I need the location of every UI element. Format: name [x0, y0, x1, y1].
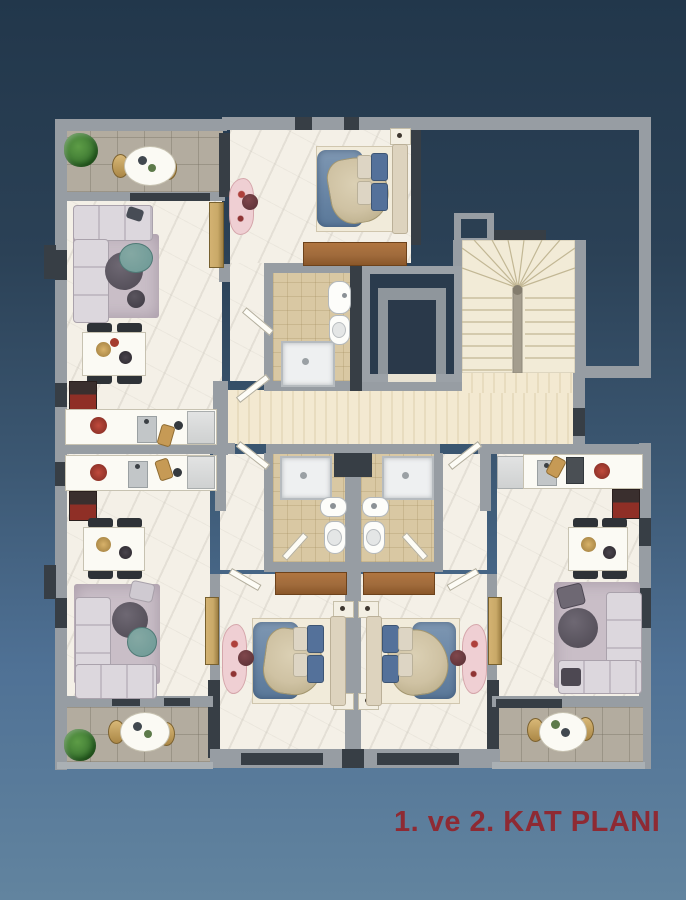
- bed-pillow: [382, 655, 399, 683]
- table-decor: [110, 338, 119, 347]
- bed-headboard: [392, 144, 408, 234]
- stove-icon: [612, 489, 640, 519]
- faucet-icon: [135, 464, 140, 469]
- entry-door: [209, 202, 224, 268]
- wall-bath-r-bottom: [352, 562, 443, 572]
- staircase: [462, 240, 575, 373]
- wall-top-balcony: [55, 119, 227, 131]
- wall-top-outer: [222, 117, 651, 130]
- wall-corridor-bottom-right: [478, 444, 575, 454]
- desk-stool: [450, 650, 466, 666]
- kettle-icon: [173, 468, 182, 477]
- dresser: [275, 572, 347, 595]
- edge-balcony-br: [492, 762, 645, 769]
- shower-drain: [302, 358, 309, 365]
- wall-void-bottom: [575, 366, 651, 378]
- plan-title: 1. ve 2. KAT PLANI: [394, 806, 654, 842]
- desk-stool: [238, 650, 254, 666]
- wall-bedroom-4-right-dark: [487, 680, 499, 758]
- flower-decor: [90, 464, 107, 481]
- shower-tray: [281, 341, 335, 387]
- window-left-d: [55, 598, 67, 628]
- bed-pillow: [371, 183, 388, 211]
- bed-headboard: [330, 616, 346, 706]
- window-left-a: [55, 250, 67, 280]
- coffee-table: [558, 608, 598, 648]
- fridge-icon: [497, 456, 525, 489]
- window-living-1-balcony: [130, 193, 210, 201]
- table-decor: [144, 730, 152, 738]
- wall-bedroom-divider: [345, 570, 361, 760]
- elevator-door-gap: [388, 374, 436, 382]
- duct-between-baths: [334, 453, 372, 477]
- sofa-left-arm: [73, 239, 109, 323]
- dining-table: [568, 527, 628, 571]
- side-table: [119, 243, 153, 273]
- table-decor: [133, 722, 142, 731]
- faucet-icon: [371, 503, 377, 509]
- pilaster-left-upper: [44, 245, 56, 279]
- wall-stairs-right: [575, 240, 586, 373]
- nightstand-knob: [340, 606, 345, 611]
- toilet-seat: [332, 322, 346, 338]
- table-decor: [96, 537, 111, 552]
- window-right-a: [639, 518, 651, 546]
- table-decor: [148, 164, 156, 172]
- fridge-icon: [187, 411, 215, 444]
- pilaster-left-lower: [44, 565, 56, 599]
- flower-decor: [594, 463, 610, 479]
- bathroom-sink: [328, 281, 351, 314]
- toilet-seat: [327, 529, 342, 546]
- sofa-bottom-arm: [75, 664, 157, 699]
- wall-hall-1-post: [219, 133, 230, 197]
- shower-drain: [402, 472, 409, 479]
- desk-stool: [242, 194, 258, 210]
- hall-3-floor: [220, 454, 264, 570]
- entry-door: [205, 597, 219, 665]
- duct-box-core: [461, 219, 487, 238]
- window-balcony-3-a: [112, 698, 140, 706]
- bed-pillow: [398, 627, 413, 651]
- table-decor: [581, 537, 596, 552]
- table-decor: [96, 342, 111, 357]
- entry-door: [488, 597, 502, 665]
- bed-pillow: [382, 625, 399, 653]
- dining-table: [83, 527, 145, 571]
- wall-bedroom-1-right: [411, 130, 421, 245]
- window-top-b: [344, 117, 359, 130]
- table-decor: [603, 546, 616, 559]
- table-decor: [551, 720, 560, 729]
- side-table: [127, 627, 157, 657]
- plant-icon: [64, 133, 98, 167]
- table-decor: [138, 156, 147, 165]
- plant-icon: [64, 729, 96, 761]
- elevator-car: [388, 300, 436, 374]
- flower-decor: [90, 417, 107, 434]
- side-table: [561, 668, 581, 686]
- wall-apt4-top: [583, 444, 643, 454]
- dresser: [303, 242, 407, 266]
- bed-pillow: [293, 653, 308, 677]
- shower-tray: [280, 456, 332, 500]
- bed-pillow: [398, 653, 413, 677]
- cooktop-icon: [566, 457, 584, 484]
- edge-balcony-bl: [57, 762, 213, 769]
- stove-icon: [69, 491, 97, 521]
- wall-bath-r-right: [434, 453, 443, 567]
- bed-pillow: [293, 627, 308, 651]
- shower-drain: [300, 472, 307, 479]
- wall-bath-l-bottom: [264, 562, 356, 572]
- corridor-stair-landing: [462, 373, 573, 393]
- shower-tray: [382, 456, 434, 500]
- nightstand-knob: [397, 133, 402, 138]
- post-bedrooms-bottom: [342, 749, 364, 768]
- faucet-icon: [330, 503, 336, 509]
- wall-hall-4-post: [480, 453, 491, 511]
- bed-pillow: [371, 153, 388, 181]
- wall-bedroom-3-left-dark: [208, 680, 220, 758]
- window-left-b: [55, 383, 67, 407]
- corridor-floor: [228, 390, 573, 444]
- window-bedroom-4: [377, 753, 459, 765]
- window-balcony-3-b: [164, 698, 190, 706]
- stove-icon: [69, 381, 97, 411]
- window-top-a: [295, 117, 312, 130]
- bed-pillow: [307, 625, 324, 653]
- dresser: [363, 572, 435, 595]
- window-balcony-4: [496, 699, 562, 708]
- wall-corridor-right-post: [573, 408, 585, 436]
- faucet-icon: [144, 419, 149, 424]
- fridge-icon: [187, 456, 215, 489]
- elevator: [362, 266, 462, 382]
- table-decor: [119, 351, 132, 364]
- bed-headboard: [366, 616, 382, 706]
- window-bedroom-3: [241, 753, 323, 765]
- nightstand-knob: [365, 606, 370, 611]
- wall-balcony-br-edge: [643, 703, 651, 769]
- bed-pillow: [357, 155, 372, 179]
- table-decor: [119, 546, 132, 559]
- floor-plan: 1. ve 2. KAT PLANI: [0, 0, 686, 900]
- toilet-seat: [366, 529, 381, 546]
- bed-pillow: [357, 181, 372, 205]
- faucet-icon: [342, 293, 347, 298]
- wall-right-outer-upper: [639, 117, 651, 377]
- kettle-icon: [174, 421, 183, 430]
- bed-pillow: [307, 655, 324, 683]
- pouf: [127, 290, 145, 308]
- table-decor: [561, 728, 570, 737]
